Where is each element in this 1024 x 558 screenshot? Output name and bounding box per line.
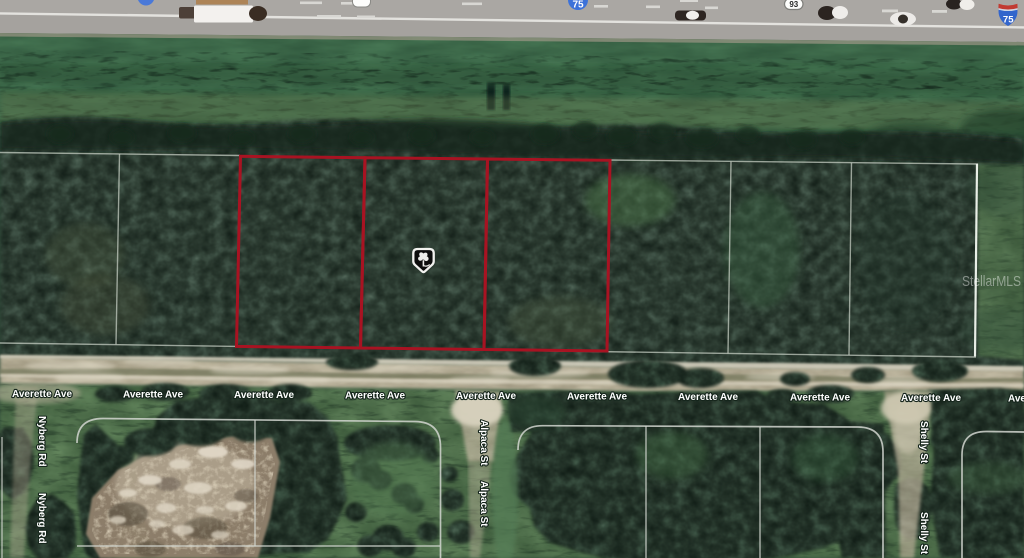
svg-text:Alpaca St: Alpaca St [478, 481, 489, 527]
svg-text:Averette Ave: Averette Ave [234, 390, 294, 401]
svg-text:Shelly St: Shelly St [918, 512, 929, 555]
svg-text:Averette Ave: Averette Ave [456, 391, 516, 402]
svg-text:Shelly St: Shelly St [918, 421, 929, 464]
svg-text:Averette Ave: Averette Ave [678, 392, 738, 403]
svg-text:Averette Ave: Averette Ave [901, 393, 961, 404]
svg-text:Alpaca St: Alpaca St [478, 420, 489, 466]
svg-text:75: 75 [572, 0, 584, 11]
svg-text:StellarMLS: StellarMLS [962, 273, 1021, 290]
svg-text:Nyberg Rd: Nyberg Rd [36, 493, 47, 544]
svg-text:93: 93 [789, 0, 798, 9]
svg-text:Averette Ave: Averette Ave [123, 390, 183, 401]
svg-text:Averette Ave: Averette Ave [1008, 394, 1024, 405]
svg-text:Averette Ave: Averette Ave [345, 391, 405, 402]
svg-text:Averette Ave: Averette Ave [567, 392, 627, 403]
svg-text:75: 75 [1003, 15, 1014, 26]
svg-text:Averette Ave: Averette Ave [790, 393, 850, 404]
svg-text:Nyberg Rd: Nyberg Rd [36, 416, 47, 467]
svg-text:Averette Ave: Averette Ave [12, 389, 72, 400]
